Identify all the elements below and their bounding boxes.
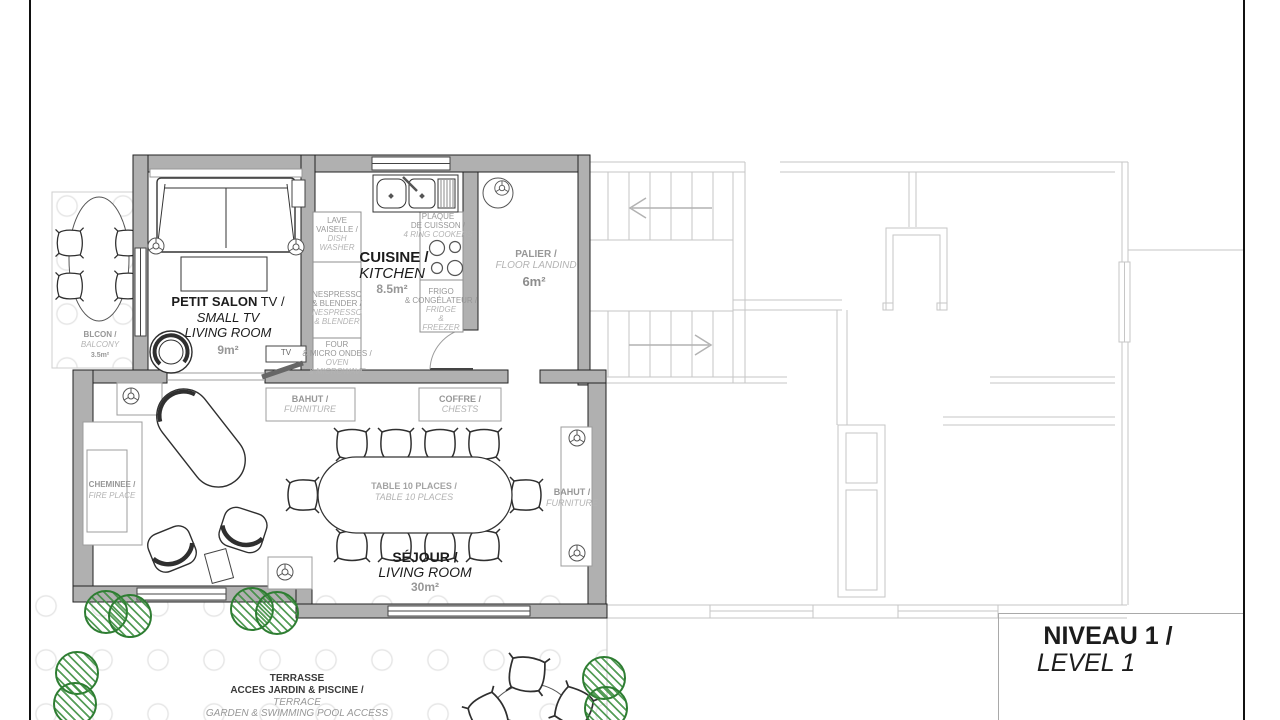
balcony-area: 3.5m² [91,352,109,360]
tv-room-label-en1: SMALL TV [197,311,260,326]
fridge-label: FRIGO & CONGÉLATEUR / FRIDGE & FREEZER [405,288,477,333]
bush [53,682,97,720]
bush [255,591,299,635]
living-room-label-en: LIVING ROOM [378,565,471,581]
table10-label-fr: TABLE 10 PLACES / [371,481,457,491]
cooktop-en1: 4 RING COOKERS [404,231,473,240]
title-level-en: LEVEL 1 [1037,649,1135,677]
title-block-divider-v [998,613,999,720]
kitchen-sink [373,175,458,212]
terrace-label-l3: TERRACE [273,697,321,708]
fridge-en3: FREEZER [405,324,477,333]
bahut-top-label-en: FURNITURE [284,404,336,414]
dishwasher-label: LAVE VAISELLE / DISH WASHER [316,217,358,253]
kitchen-label-en: KITCHEN [359,266,425,283]
tv-room-fr-rest: TV / [257,294,284,309]
plan-drawing [0,0,1280,720]
nespresso-label: NESPRESSO & BLENDER / NESPRESSO & BLENDE… [312,291,362,327]
cooktop-label: PLAQUE DE CUISSON / 4 RING COOKERS [404,213,473,240]
kitchen-door [430,329,473,369]
tv-room-area: 9m² [217,344,238,357]
tv-room-label-fr: PETIT SALON TV / [171,295,284,310]
terrace-label-l2: ACCES JARDIN & PISCINE / [230,685,363,696]
nespresso-en2: & BLENDER [312,318,362,327]
landing-area: 6m² [522,275,545,290]
tv-room-label-en2: LIVING ROOM [185,326,272,341]
sheet-border-right [1243,0,1245,720]
coffre-label-fr: COFFRE / [439,394,481,404]
bahut-right-label-en: FURNITURE [546,498,598,508]
balcony-label-fr: BLCON / [84,331,117,340]
tv-room-fr-bold: PETIT SALON [171,294,257,309]
oven-label: FOUR & MICRO ONDES / OVEN & MICROWAVE [302,341,371,377]
sheet-border-left [29,0,31,720]
tv-box-label: TV [281,349,291,358]
fireplace-label-en: FIRE PLACE [89,492,136,501]
bahut-top-label-fr: BAHUT / [292,394,329,404]
fireplace-label-fr: CHEMINEE / [89,481,136,490]
passage-opening [167,373,265,380]
title-block-divider-h [998,613,1243,614]
terrace-label-l1: TERRASSE [270,673,324,684]
bahut-right-label-fr: BAHUT / [554,487,591,497]
coffre-label-en: CHESTS [442,404,479,414]
outdoor-dining-set [461,653,601,720]
landing-label-fr: PALIER / [515,249,556,260]
bush [108,594,152,638]
terrace-label-l4: GARDEN & SWIMMING POOL ACCESS [206,708,388,719]
balcony-label-en: BALCONY [81,341,119,350]
title-level-fr: NIVEAU 1 / [1043,622,1172,650]
oven-en2: & MICROWAVE [302,368,371,377]
landing-label-en: FLOOR LANDIND [495,260,576,271]
kitchen-area: 8.5m² [376,283,407,296]
table10-label-en: TABLE 10 PLACES [375,492,453,502]
dishwasher-en2: WASHER [316,244,358,253]
living-room-area: 30m² [411,581,439,594]
living-room-furniture [83,378,592,589]
floor-plan-sheet: BLCON / BALCONY 3.5m² PETIT SALON TV / S… [0,0,1280,720]
